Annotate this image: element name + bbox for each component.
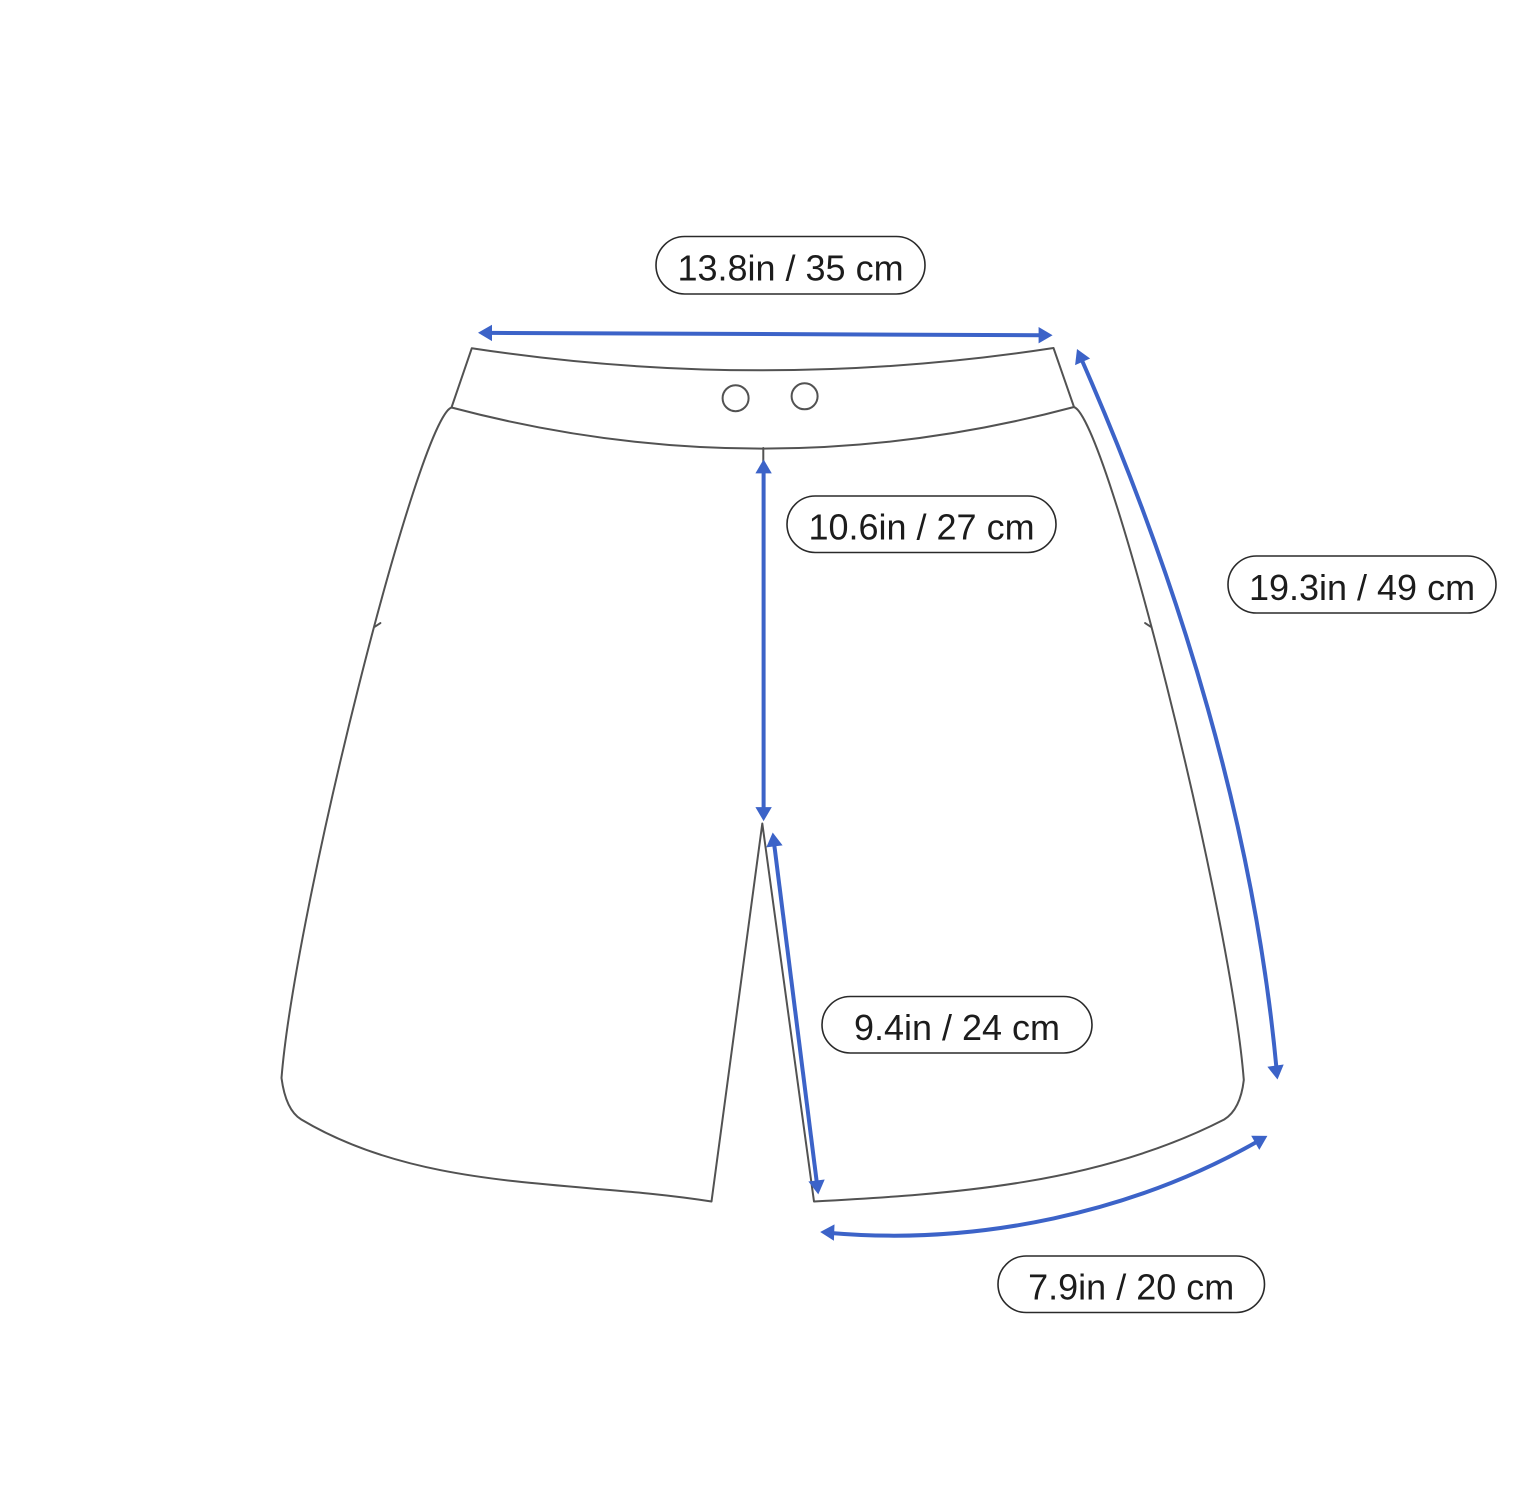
svg-text:9.4in / 24 cm: 9.4in / 24 cm <box>854 1007 1060 1048</box>
svg-text:7.9in / 20 cm: 7.9in / 20 cm <box>1028 1267 1234 1308</box>
svg-text:19.3in / 49 cm: 19.3in / 49 cm <box>1249 567 1475 608</box>
svg-text:13.8in / 35 cm: 13.8in / 35 cm <box>677 248 903 289</box>
svg-text:10.6in / 27 cm: 10.6in / 27 cm <box>808 507 1034 548</box>
